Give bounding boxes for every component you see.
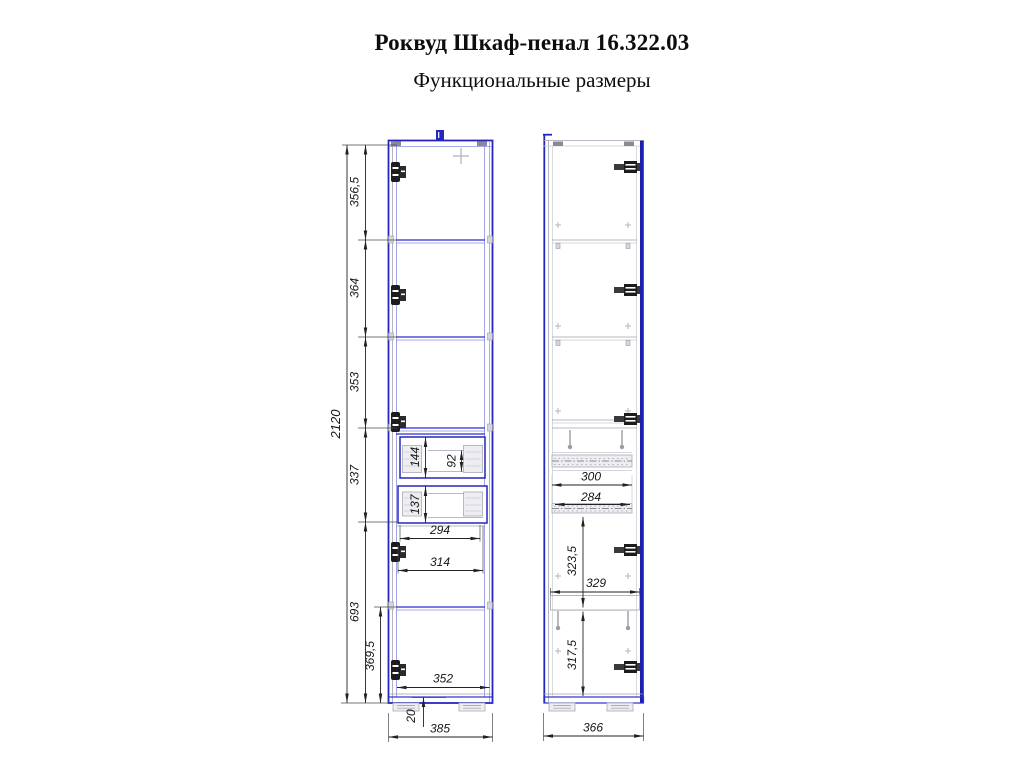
dim-rail-length: 300: [581, 470, 601, 484]
front-view: 144 92 137: [389, 130, 493, 711]
bolt-pin-icon: [568, 430, 572, 449]
hinge-icon: [614, 284, 640, 296]
bolt-pin-icon: [556, 611, 560, 630]
hinge-icon: [614, 544, 640, 556]
dim-bottom-niche-height: 317,5: [565, 640, 579, 670]
hinge-icon: [391, 162, 406, 182]
dim-drawer-top-clear: 92: [445, 454, 459, 468]
dim-overall-depth: 366: [583, 721, 603, 735]
foot-icon: [549, 703, 575, 711]
dim-bottom-panel: 20: [404, 709, 418, 724]
front-drawers: 144 92 137: [396, 434, 487, 526]
dim-drawer-inner-width: 294: [429, 523, 450, 537]
side-hinges: [614, 161, 640, 673]
dim-inner-width: 352: [433, 672, 453, 686]
side-shelf-block: [551, 596, 640, 631]
dim-drawer-width: 314: [430, 555, 450, 569]
dim-section-5: 693: [348, 602, 362, 622]
dim-niche-height: 323,5: [565, 546, 579, 576]
hinge-icon: [391, 542, 406, 562]
hinge-icon: [391, 285, 406, 305]
bolt-pin-icon: [626, 611, 630, 630]
side-view: [543, 134, 644, 711]
hinge-icon: [391, 660, 406, 680]
foot-icon: [607, 703, 633, 711]
dim-overall-width: 385: [430, 722, 450, 736]
dim-overall-height: 2120: [328, 409, 343, 440]
dim-rail-clear: 284: [580, 490, 601, 504]
wall-bracket-marker: [436, 130, 444, 140]
hinge-icon: [614, 661, 640, 673]
dim-section-3: 353: [348, 372, 362, 392]
side-back-edge: [640, 140, 644, 703]
centering-cross-icon: [453, 148, 469, 164]
hinge-icon: [614, 161, 640, 173]
dim-section-4: 337: [348, 464, 362, 485]
dim-shelf-depth: 329: [586, 576, 606, 590]
dim-drawer-top-height: 144: [408, 447, 422, 467]
hinge-icon: [391, 412, 406, 432]
dim-section-2: 364: [348, 278, 362, 298]
technical-drawing: 144 92 137 2120 356,5: [0, 0, 1024, 768]
dim-section-1: 356,5: [348, 177, 362, 207]
foot-icon: [459, 703, 485, 711]
dim-drawer-bottom-height: 137: [408, 493, 422, 514]
bolt-pin-icon: [620, 430, 624, 449]
dim-bottom-compartment: 369,5: [363, 641, 377, 671]
